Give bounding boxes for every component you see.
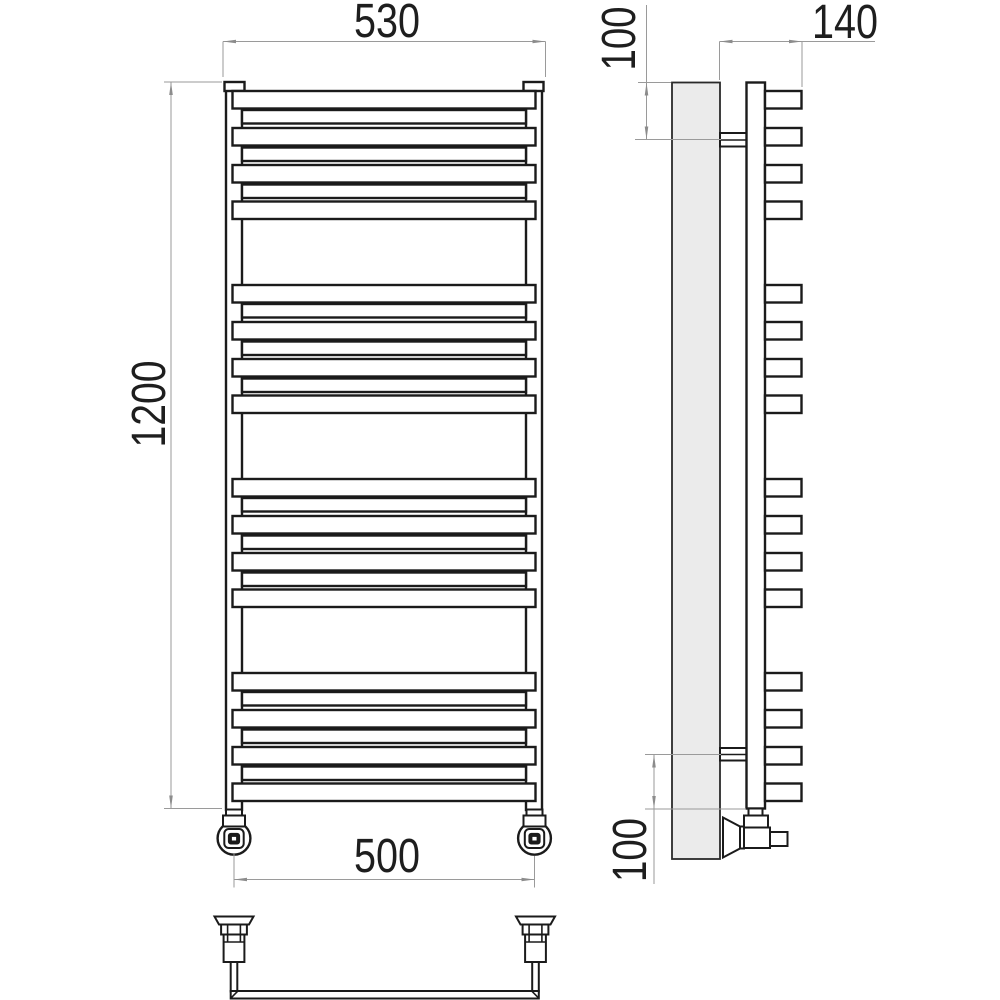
dim-100-bottom-label: 100 bbox=[604, 818, 657, 882]
valve-tail-cone bbox=[723, 818, 740, 858]
front-view bbox=[218, 82, 551, 855]
towel-bar-front bbox=[233, 553, 536, 571]
dim-500-label: 500 bbox=[354, 830, 420, 883]
supply-pipe-vertical bbox=[532, 962, 539, 992]
towel-bar-front bbox=[233, 516, 536, 534]
towel-bar-side bbox=[765, 128, 802, 146]
fitting-cap bbox=[516, 917, 555, 925]
towel-bar-rear bbox=[242, 573, 526, 587]
wall-bracket-top bbox=[720, 133, 747, 147]
valve-outlet-pipe bbox=[770, 832, 788, 846]
towel-bar-rear bbox=[242, 148, 526, 162]
wall-bracket-bottom bbox=[720, 748, 747, 761]
side-post bbox=[747, 83, 766, 809]
towel-bar-rear bbox=[242, 110, 526, 124]
towel-bar-side bbox=[765, 359, 802, 377]
towel-bar-side bbox=[765, 91, 802, 109]
detail-fittings bbox=[215, 917, 556, 992]
side-valve bbox=[723, 809, 788, 858]
valve-nut bbox=[524, 816, 546, 827]
valve-body bbox=[744, 828, 770, 849]
towel-bar-rear bbox=[242, 767, 526, 781]
towel-bar-front bbox=[233, 479, 536, 497]
towel-bar-side bbox=[765, 165, 802, 183]
front-post-cap-right bbox=[524, 82, 544, 91]
front-post-cap-left bbox=[225, 82, 245, 91]
fitting-cap bbox=[215, 917, 254, 925]
valve-square-inner bbox=[231, 836, 238, 842]
dim-140: 140 bbox=[720, 0, 879, 87]
towel-bar-side bbox=[765, 396, 802, 414]
towel-bar-front bbox=[233, 202, 536, 220]
dim-500: 500 bbox=[234, 830, 535, 888]
towel-bar-front bbox=[233, 165, 536, 183]
towel-bar-side bbox=[765, 516, 802, 534]
towel-bar-front bbox=[233, 285, 536, 303]
front-valve-left bbox=[218, 810, 251, 855]
towel-bar-side bbox=[765, 710, 802, 728]
wall-section bbox=[672, 83, 720, 860]
towel-bar-rear bbox=[242, 730, 526, 744]
towel-bar-rear bbox=[242, 536, 526, 550]
towel-bar-rear bbox=[242, 342, 526, 356]
towel-rail-technical-drawing: 530 1200 500 140 bbox=[0, 0, 1000, 1000]
front-post-right bbox=[526, 91, 542, 811]
connection-detail bbox=[215, 917, 556, 999]
front-post-left bbox=[226, 91, 242, 811]
dim-1200: 1200 bbox=[123, 82, 222, 809]
towel-bar-rear bbox=[242, 692, 526, 706]
towel-bar-front bbox=[233, 359, 536, 377]
towel-bar-front bbox=[233, 784, 536, 802]
dim-100-top-label: 100 bbox=[593, 7, 646, 71]
valve-collar bbox=[749, 809, 763, 816]
detail-fitting bbox=[516, 917, 555, 992]
towel-bar-side bbox=[765, 747, 802, 765]
dim-1200-label: 1200 bbox=[123, 361, 176, 448]
towel-bar-side bbox=[765, 553, 802, 571]
towel-bar-side bbox=[765, 784, 802, 802]
supply-pipe-vertical bbox=[231, 962, 238, 992]
towel-bar-rear bbox=[242, 379, 526, 393]
towel-bar-side bbox=[765, 590, 802, 608]
towel-bar-rear bbox=[242, 498, 526, 512]
detail-fitting bbox=[215, 917, 254, 992]
towel-bar-front bbox=[233, 322, 536, 340]
valve-square-inner bbox=[531, 836, 538, 842]
dim-530: 530 bbox=[223, 0, 546, 77]
towel-bar-rear bbox=[242, 304, 526, 318]
side-bars bbox=[765, 91, 802, 801]
fitting-collar bbox=[221, 925, 247, 935]
dim-140-label: 140 bbox=[812, 0, 878, 49]
towel-bar-front bbox=[233, 747, 536, 765]
dim-530-label: 530 bbox=[354, 0, 420, 48]
fitting-collar bbox=[523, 925, 549, 935]
towel-bar-side bbox=[765, 322, 802, 340]
side-view bbox=[672, 83, 802, 860]
fitting-block bbox=[224, 935, 245, 963]
towel-bar-side bbox=[765, 479, 802, 497]
fitting-block bbox=[525, 935, 546, 963]
towel-bar-side bbox=[765, 285, 802, 303]
supply-pipe-horizontal bbox=[231, 991, 539, 999]
towel-bar-side bbox=[765, 673, 802, 691]
towel-bar-front bbox=[233, 91, 536, 109]
valve-nut bbox=[744, 816, 768, 828]
towel-bar-front bbox=[233, 673, 536, 691]
towel-bar-front bbox=[233, 710, 536, 728]
towel-bar-front bbox=[233, 590, 536, 608]
towel-bar-rear bbox=[242, 185, 526, 199]
towel-bar-front bbox=[233, 128, 536, 146]
front-valve-right bbox=[518, 810, 551, 855]
towel-bar-front bbox=[233, 396, 536, 414]
valve-nut bbox=[223, 816, 245, 827]
towel-bar-side bbox=[765, 202, 802, 220]
